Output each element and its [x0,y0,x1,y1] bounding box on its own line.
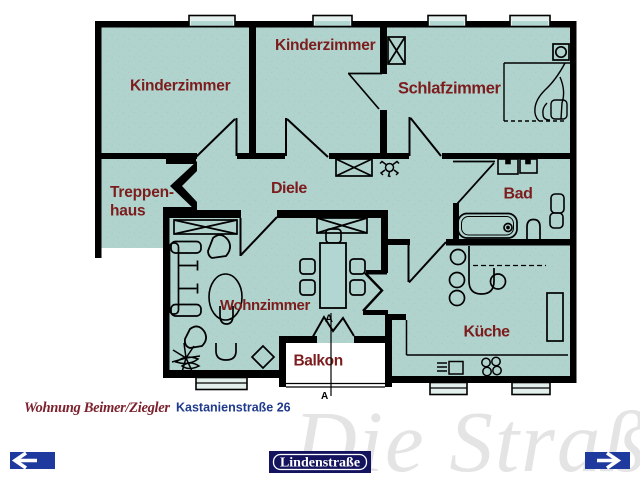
svg-text:Kastanienstraße 26: Kastanienstraße 26 [176,401,291,415]
svg-text:Wohnung Beimer/Ziegler: Wohnung Beimer/Ziegler [24,400,170,416]
svg-text:A: A [321,391,328,402]
svg-text:Kinderzimmer: Kinderzimmer [275,37,376,54]
svg-text:Küche: Küche [464,324,511,341]
svg-text:Wohnzimmer: Wohnzimmer [220,297,310,314]
svg-text:Diele: Diele [271,180,307,197]
svg-text:Kinderzimmer: Kinderzimmer [130,78,231,95]
svg-text:Bad: Bad [504,186,533,203]
svg-text:A: A [325,313,333,325]
svg-text:haus: haus [110,203,145,220]
svg-text:Treppen-: Treppen- [110,184,174,201]
svg-text:Schlafzimmer: Schlafzimmer [398,80,501,98]
svg-text:Balkon: Balkon [294,353,343,370]
svg-text:Lindenstraße: Lindenstraße [280,456,360,471]
